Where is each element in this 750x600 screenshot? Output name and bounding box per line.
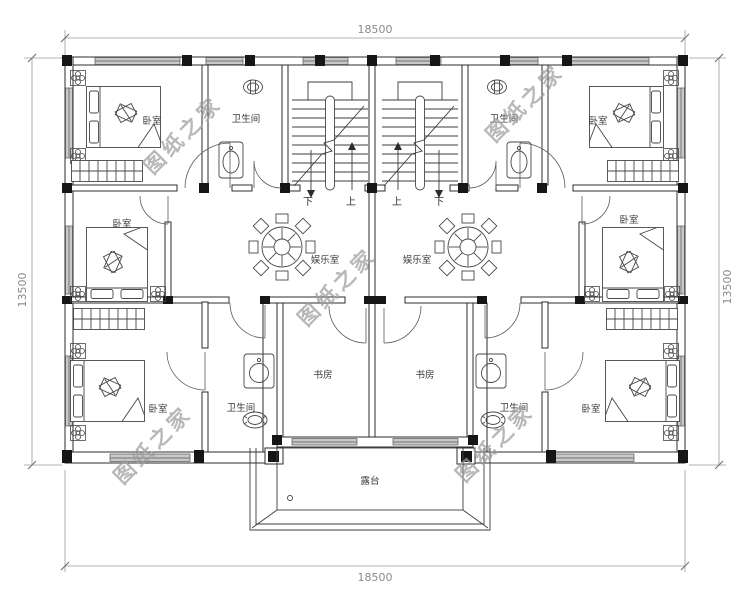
stair-label-left-down: 下 xyxy=(303,197,313,208)
room-label-bedroom-mid-right: 卧室 xyxy=(619,214,638,226)
room-label-bathroom-bottom-left: 卫生间 xyxy=(227,402,256,414)
dimension-bottom-value: 18500 xyxy=(358,571,393,584)
bed-mid-left xyxy=(87,228,148,302)
room-label-recreation-right: 娱乐室 xyxy=(403,254,432,266)
room-label-recreation-left: 娱乐室 xyxy=(311,254,340,266)
room-label-study-right: 书房 xyxy=(415,369,434,381)
room-label-bathroom-top-left: 卫生间 xyxy=(232,113,261,125)
bed-bottom-right xyxy=(606,361,680,422)
room-label-bedroom-bottom-right: 卧室 xyxy=(581,403,600,415)
dimension-right-value: 13500 xyxy=(721,270,734,305)
stair-label-right-down: 下 xyxy=(434,197,444,208)
room-label-bedroom-top-left: 卧室 xyxy=(142,115,161,127)
stair-label-left-up: 上 xyxy=(346,196,356,208)
wardrobe xyxy=(607,309,678,330)
floor-plan: 18500 18500 13500 13500 xyxy=(0,0,750,600)
wardrobe xyxy=(72,161,143,182)
room-label-bedroom-bottom-left: 卧室 xyxy=(148,403,167,415)
dimension-left-value: 13500 xyxy=(16,273,29,308)
room-label-bedroom-mid-left: 卧室 xyxy=(112,218,131,230)
stair-label-right-up: 上 xyxy=(392,196,402,208)
dimension-top-value: 18500 xyxy=(358,23,393,36)
bed-bottom-left xyxy=(71,361,145,422)
floor-plan-drawing: 18500 18500 13500 13500 xyxy=(0,0,750,600)
room-label-bedroom-top-right: 卧室 xyxy=(588,115,607,127)
wardrobe xyxy=(74,309,145,330)
room-label-terrace: 露台 xyxy=(360,475,379,487)
room-label-study-left: 书房 xyxy=(313,369,332,381)
wardrobe xyxy=(608,161,679,182)
bed-mid-right xyxy=(603,228,664,302)
